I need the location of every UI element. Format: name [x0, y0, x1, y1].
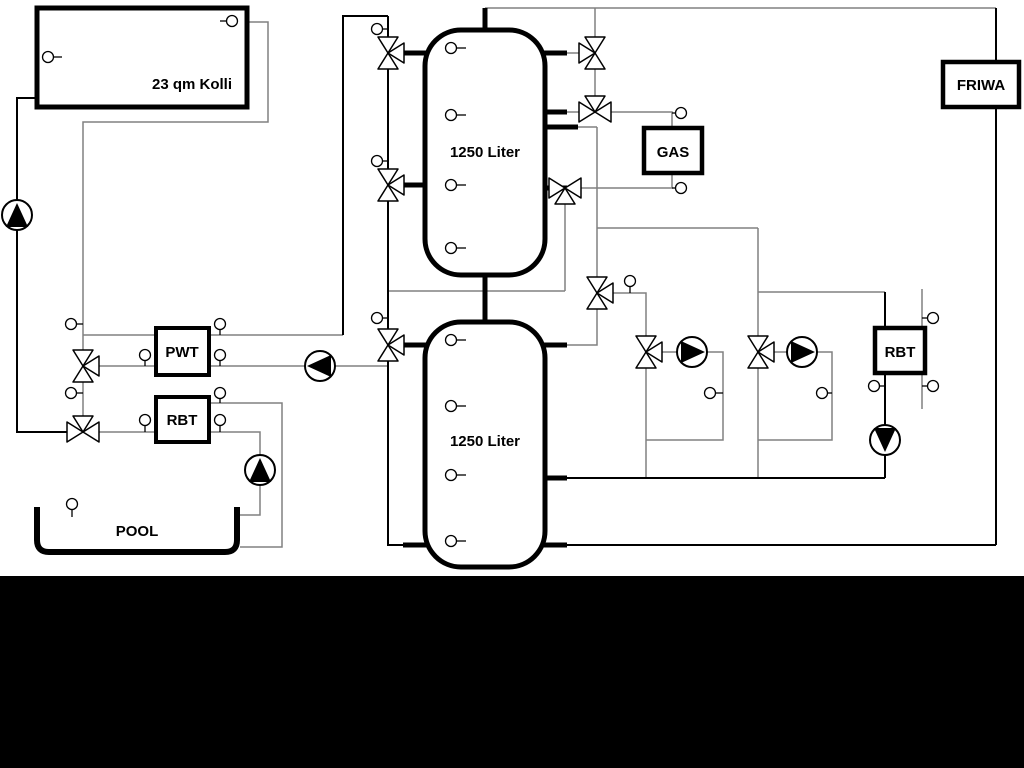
schematic-page: 23 qm Kolli 1250 Liter 1250 Liter PWT RB…: [0, 0, 1024, 768]
pump-rbt-right-icon: [870, 425, 900, 455]
solar-collector-label: 23 qm Kolli: [152, 76, 232, 93]
piping-diagram: 23 qm Kolli 1250 Liter 1250 Liter PWT RB…: [0, 0, 1024, 768]
rbt-left-label: RBT: [167, 412, 198, 429]
rbt-right-label: RBT: [885, 344, 916, 361]
buffer-tank-bottom-label: 1250 Liter: [450, 433, 520, 450]
pump-pool-icon: [245, 455, 275, 485]
pump-solar-icon: [2, 200, 32, 230]
pool-label: POOL: [116, 523, 159, 540]
friwa-label: FRIWA: [957, 77, 1005, 94]
footer-band: [0, 576, 1024, 768]
buffer-tank-top-label: 1250 Liter: [450, 144, 520, 161]
pump-heating-circuit-1-icon: [677, 337, 707, 367]
gas-label: GAS: [657, 144, 690, 161]
pump-heating-circuit-2-icon: [787, 337, 817, 367]
pwt-label: PWT: [165, 344, 198, 361]
pump-pwt-icon: [305, 351, 335, 381]
